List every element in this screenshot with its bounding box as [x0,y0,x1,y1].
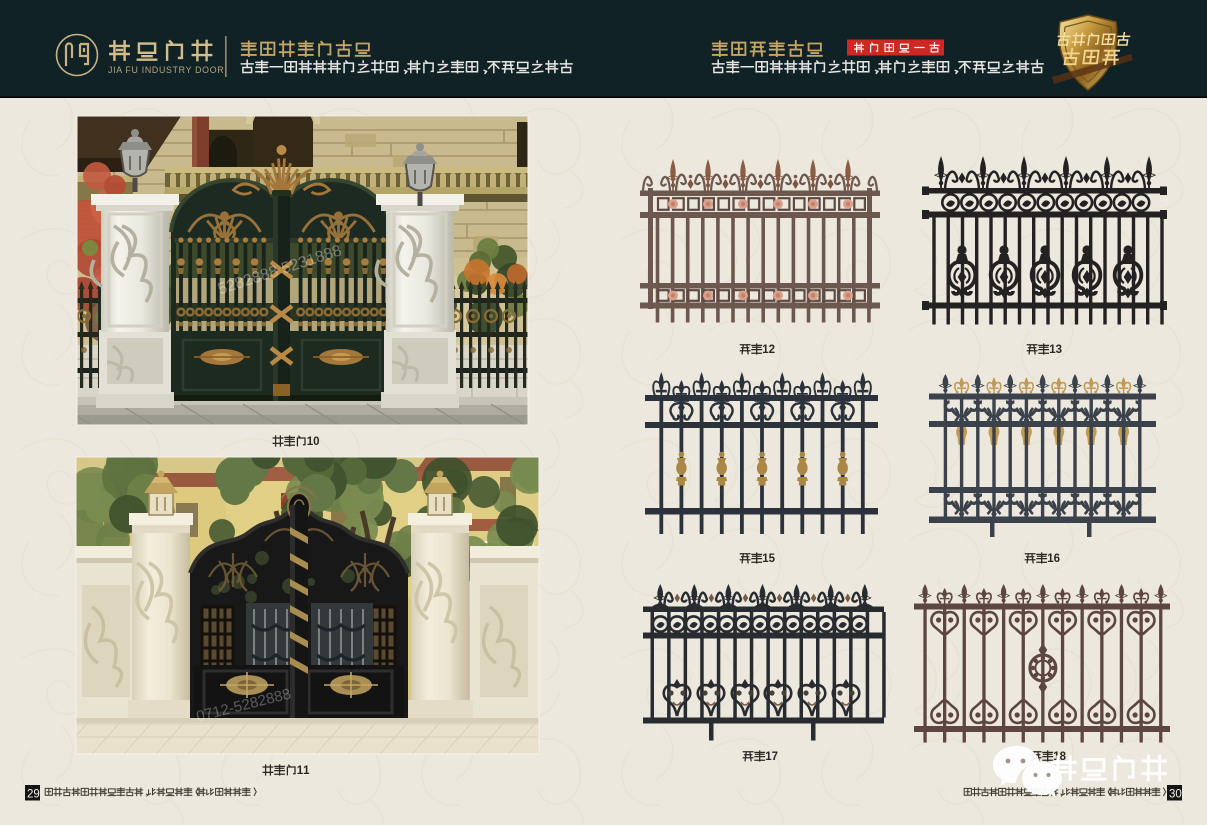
svg-text:7: 7 [772,751,778,763]
svg-text:6: 6 [1054,553,1060,565]
svg-text:3: 3 [1056,344,1062,356]
svg-text:30: 30 [1169,789,1182,801]
svg-text:5: 5 [769,553,776,565]
svg-text:29: 29 [27,789,40,801]
svg-text:0: 0 [313,436,319,448]
svg-text:2: 2 [769,344,775,356]
svg-text:1: 1 [303,765,310,777]
svg-text:JIA FU INDUSTRY DOOR: JIA FU INDUSTRY DOOR [108,65,224,75]
